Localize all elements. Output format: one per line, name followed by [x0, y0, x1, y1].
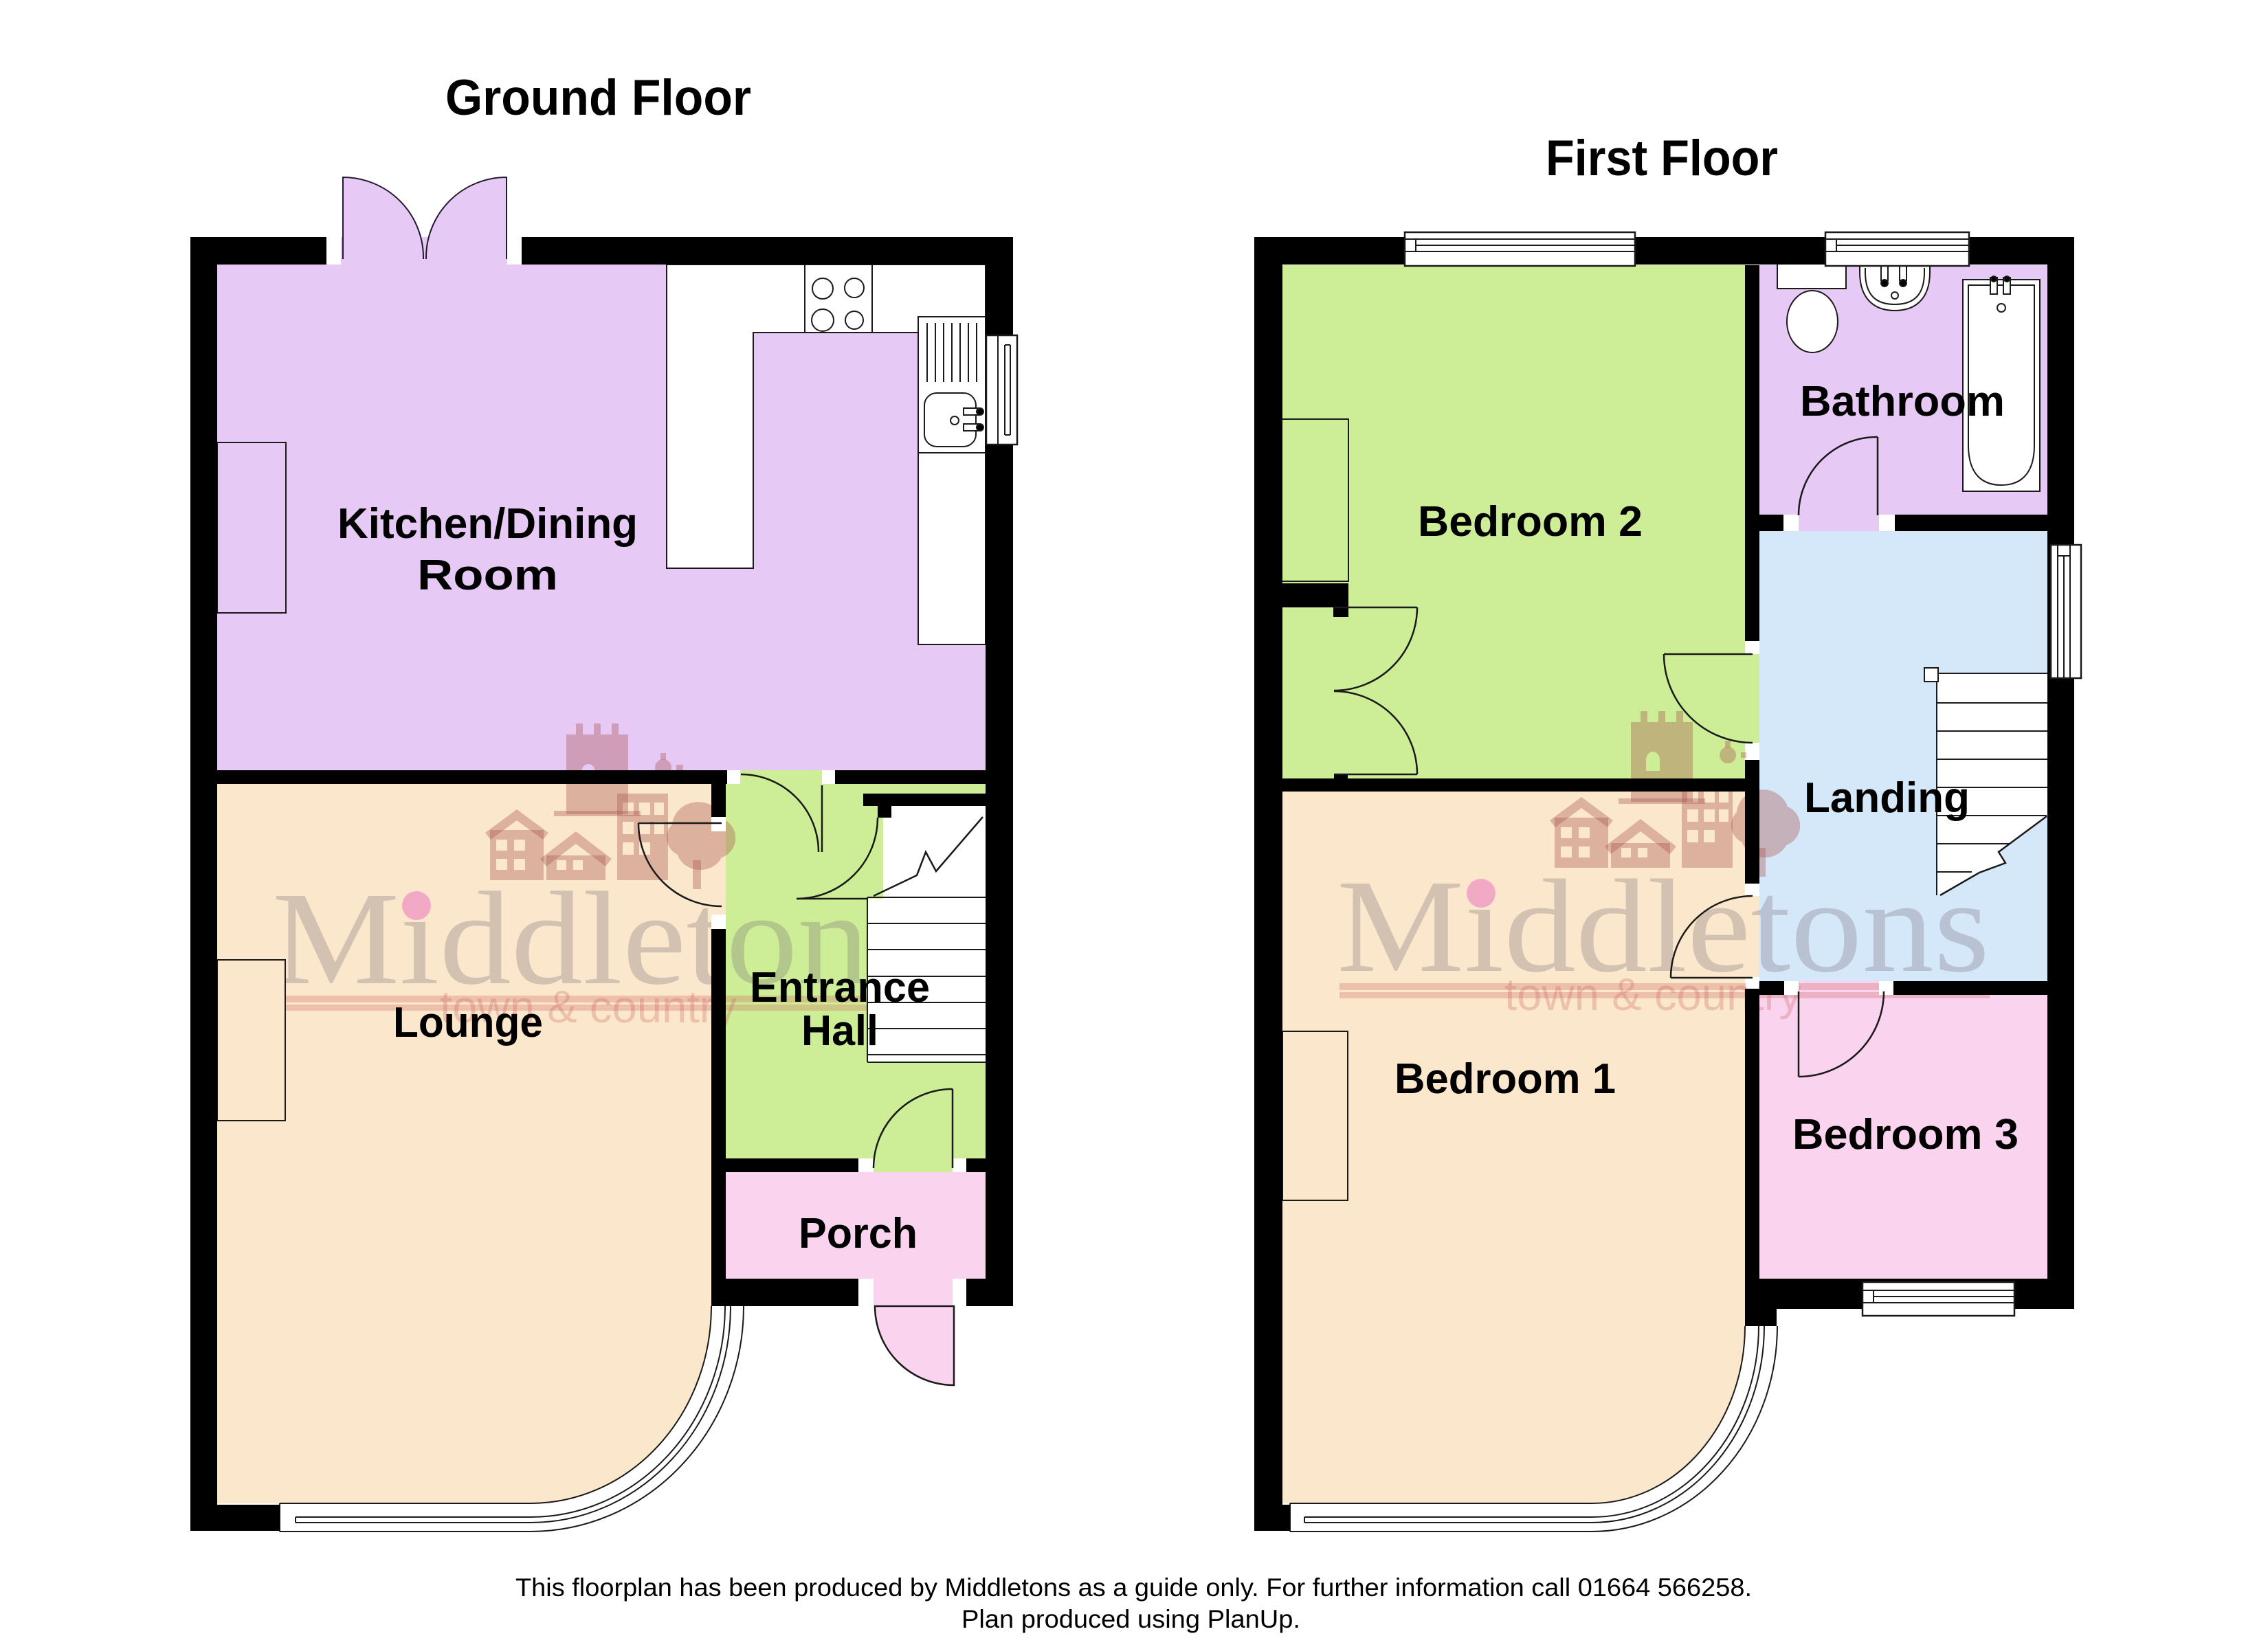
svg-text:Bedroom 1: Bedroom 1 [1394, 1055, 1616, 1103]
svg-text:Bedroom 3: Bedroom 3 [1792, 1111, 2019, 1158]
svg-text:Hall: Hall [801, 1007, 878, 1055]
svg-text:Lounge: Lounge [393, 999, 543, 1046]
svg-text:This floorplan has been produc: This floorplan has been produced by Midd… [515, 1573, 1752, 1602]
svg-text:Room: Room [417, 552, 558, 599]
svg-text:Porch: Porch [799, 1210, 918, 1257]
svg-text:Ground Floor: Ground Floor [445, 70, 751, 126]
svg-text:Bedroom 2: Bedroom 2 [1418, 498, 1643, 546]
svg-text:Entrance: Entrance [750, 964, 930, 1011]
svg-text:First Floor: First Floor [1546, 131, 1778, 186]
svg-text:Plan produced using PlanUp.: Plan produced using PlanUp. [961, 1605, 1300, 1633]
svg-text:Kitchen/Dining: Kitchen/Dining [337, 500, 638, 548]
svg-text:Landing: Landing [1804, 774, 1970, 822]
svg-text:Bathroom: Bathroom [1800, 378, 2005, 425]
